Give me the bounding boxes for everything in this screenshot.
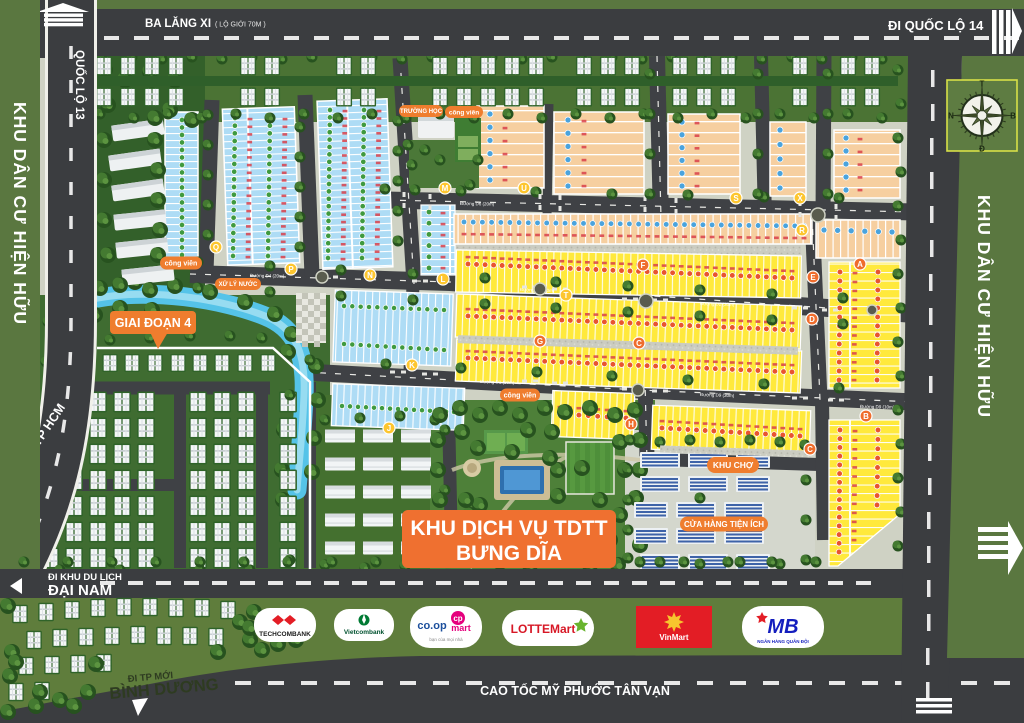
svg-text:bạn của mọi nhà: bạn của mọi nhà — [429, 636, 463, 642]
svg-text:Q: Q — [213, 243, 219, 252]
svg-text:G: G — [537, 337, 543, 346]
svg-text:ĐI QUỐC LỘ 14: ĐI QUỐC LỘ 14 — [888, 18, 984, 33]
svg-text:C: C — [636, 339, 642, 348]
svg-text:KHU DÂN CƯ HIỆN HỮU: KHU DÂN CƯ HIỆN HỮU — [10, 102, 31, 325]
svg-text:co.op: co.op — [417, 620, 447, 632]
svg-text:XỬ LÝ NƯỚC: XỬ LÝ NƯỚC — [219, 280, 258, 288]
svg-text:T: T — [980, 80, 985, 89]
svg-text:KHU CHỢ: KHU CHỢ — [713, 460, 754, 470]
svg-text:Đường D9 (10m): Đường D9 (10m) — [860, 404, 895, 410]
svg-text:NGÂN HÀNG QUÂN ĐỘI: NGÂN HÀNG QUÂN ĐỘI — [757, 637, 809, 644]
svg-text:CỬA HÀNG TIỆN ÍCH: CỬA HÀNG TIỆN ÍCH — [684, 520, 764, 529]
svg-text:C: C — [807, 445, 813, 454]
svg-text:K: K — [409, 361, 415, 370]
svg-text:D: D — [809, 315, 815, 324]
svg-text:TECHCOMBANK: TECHCOMBANK — [259, 631, 311, 638]
svg-text:S: S — [733, 194, 739, 203]
svg-text:B: B — [863, 412, 869, 421]
svg-text:A: A — [857, 260, 863, 269]
svg-text:N: N — [948, 112, 954, 121]
svg-text:X: X — [797, 194, 803, 203]
svg-text:Đ: Đ — [979, 145, 985, 154]
svg-text:MB: MB — [767, 616, 798, 638]
svg-text:cp: cp — [453, 614, 462, 623]
svg-text:J: J — [387, 424, 391, 433]
svg-text:L: L — [441, 275, 446, 284]
svg-text:mart: mart — [451, 623, 471, 633]
svg-text:LOTTEMart: LOTTEMart — [511, 622, 576, 636]
svg-text:VinMart: VinMart — [659, 633, 689, 642]
svg-text:công viên: công viên — [165, 261, 198, 268]
svg-text:QUỐC LỘ 13: QUỐC LỘ 13 — [73, 50, 87, 120]
svg-text:GIAI ĐOẠN 4: GIAI ĐOẠN 4 — [115, 316, 191, 330]
svg-text:ĐẠI NAM: ĐẠI NAM — [48, 582, 112, 599]
svg-text:M: M — [442, 184, 449, 193]
svg-text:N: N — [367, 271, 373, 280]
svg-text:BƯNG DĨA: BƯNG DĨA — [456, 542, 562, 565]
svg-text:Vietcombank: Vietcombank — [344, 629, 385, 636]
svg-text:KHU DỊCH VỤ TDTT: KHU DỊCH VỤ TDTT — [410, 517, 607, 540]
svg-text:F: F — [641, 261, 646, 270]
svg-text:TRƯỜNG HỌC: TRƯỜNG HỌC — [400, 107, 443, 115]
svg-text:công viên: công viên — [449, 109, 479, 116]
svg-text:Đường D6 (20m): Đường D6 (20m) — [460, 201, 495, 207]
svg-text:H: H — [628, 420, 634, 429]
svg-text:công viên: công viên — [504, 393, 537, 400]
svg-text:Đường D4 (20m): Đường D4 (20m) — [250, 273, 285, 279]
svg-text:E: E — [810, 273, 816, 282]
svg-text:R: R — [799, 226, 805, 235]
svg-text:U: U — [521, 184, 527, 193]
svg-text:KHU DÂN CƯ HIỆN HỮU: KHU DÂN CƯ HIỆN HỮU — [974, 195, 995, 418]
svg-text:T: T — [564, 291, 569, 300]
svg-text:B: B — [1010, 112, 1016, 121]
svg-text:P: P — [288, 265, 294, 274]
svg-text:( LỘ GIỚI 70M ): ( LỘ GIỚI 70M ) — [215, 20, 266, 29]
svg-text:CAO TỐC MỸ PHƯỚC TÂN VẠN: CAO TỐC MỸ PHƯỚC TÂN VẠN — [480, 683, 670, 698]
svg-text:BA LĂNG XI: BA LĂNG XI — [145, 17, 211, 30]
